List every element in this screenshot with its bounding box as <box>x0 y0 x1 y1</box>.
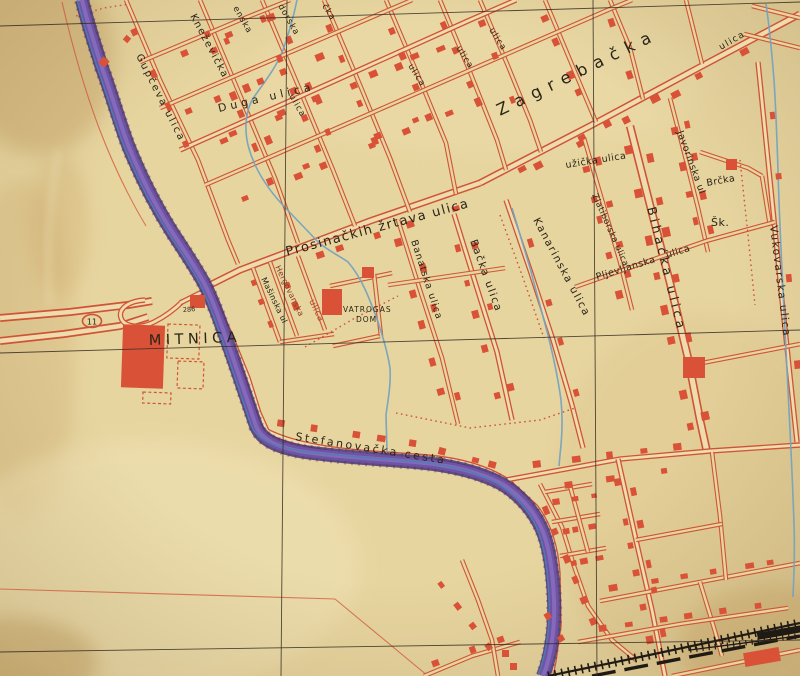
building-large <box>683 357 705 378</box>
building <box>606 475 615 482</box>
building <box>570 560 577 566</box>
building <box>532 460 541 468</box>
building <box>510 663 517 670</box>
building <box>661 468 668 474</box>
building <box>794 360 800 369</box>
school-building <box>726 159 737 170</box>
building <box>614 478 622 486</box>
elevation-marker-286: 286 <box>183 305 196 314</box>
building <box>572 526 579 533</box>
building <box>377 435 386 443</box>
building <box>352 431 360 439</box>
building <box>572 496 579 502</box>
building <box>409 439 417 447</box>
poi-label-vatrogas-dom-line2: DOM <box>356 315 377 324</box>
district-label-mitnica: MITNICA <box>149 330 242 349</box>
building <box>627 542 634 549</box>
map-canvas: Gupčeva ulica Kneževička enska dorska čk… <box>0 0 800 676</box>
building <box>645 635 654 644</box>
building <box>659 616 667 623</box>
building <box>640 448 648 454</box>
building <box>310 424 318 432</box>
fire-station-building <box>362 267 374 278</box>
building <box>562 528 570 535</box>
route-number: 11 <box>87 318 97 327</box>
historical-city-map: Gupčeva ulica Kneževička enska dorska čk… <box>0 0 800 676</box>
building <box>572 455 581 462</box>
building <box>598 624 607 632</box>
building <box>564 481 573 489</box>
building <box>606 451 613 459</box>
building <box>684 612 693 619</box>
building <box>552 498 560 505</box>
building <box>710 568 717 574</box>
building <box>754 603 761 610</box>
building <box>277 419 285 427</box>
poi-label-vatrogas-dom-line1: VATROGAS <box>343 305 392 314</box>
building <box>639 603 646 611</box>
building <box>766 559 773 565</box>
poi-label-school: Šk. <box>711 216 729 229</box>
building <box>608 584 618 592</box>
building <box>673 443 682 451</box>
building <box>632 569 640 577</box>
building <box>502 650 509 657</box>
building <box>775 173 781 180</box>
building-large <box>322 289 342 315</box>
building <box>719 607 727 614</box>
building <box>651 587 658 594</box>
building <box>770 112 776 120</box>
